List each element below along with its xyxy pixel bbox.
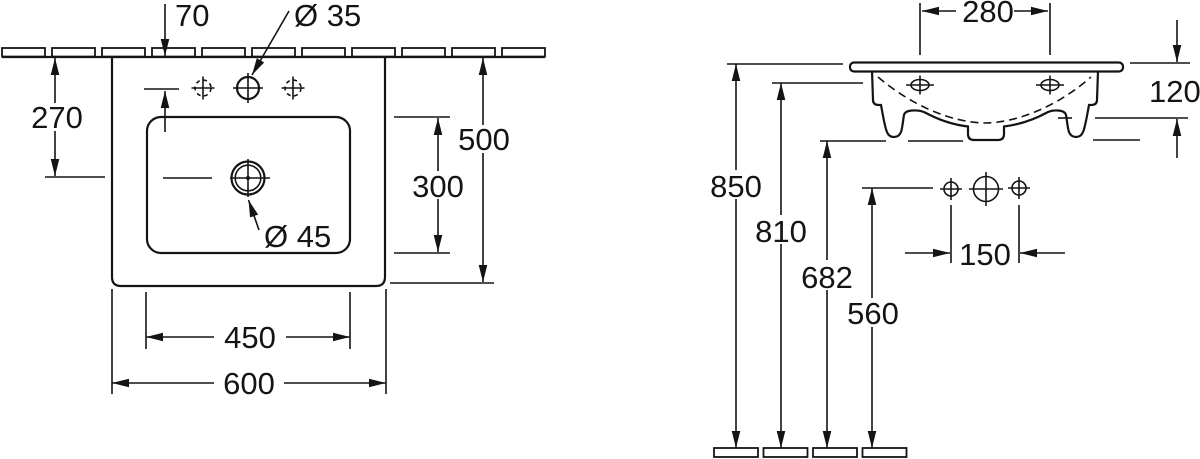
dim-label-dia35: Ø 35 (294, 0, 361, 33)
wall-hatch-brick (452, 48, 495, 57)
dimension-line (249, 200, 260, 230)
dim-label-810: 810 (755, 214, 807, 249)
rim-slab (850, 63, 1123, 72)
floor-hatch-brick (714, 448, 758, 457)
dimension-line (252, 11, 289, 75)
floor-hatch-brick (813, 448, 857, 457)
washbasin-drawing-svg: 70 Ø 35 270 500 300 Ø 45 450 600 280 120… (0, 0, 1200, 459)
dim-label-280: 280 (962, 0, 1014, 29)
floor-hatch-brick (764, 448, 808, 457)
wall-hatch-brick (102, 48, 145, 57)
dim-label-450: 450 (224, 320, 276, 355)
dim-label-150: 150 (959, 237, 1011, 272)
dim-label-270: 270 (31, 100, 83, 135)
wall-hatch-brick (202, 48, 245, 57)
section-hatching (2, 48, 907, 457)
dim-label-500: 500 (458, 122, 510, 157)
dim-label-dia45: Ø 45 (264, 219, 331, 254)
floor-hatch-brick (863, 448, 907, 457)
dim-label-300: 300 (412, 169, 464, 204)
wall-hatch-brick (302, 48, 345, 57)
wall-hatch-brick (352, 48, 395, 57)
dim-label-560: 560 (847, 296, 899, 331)
dimension-labels: 70 Ø 35 270 500 300 Ø 45 450 600 280 120… (31, 0, 1200, 401)
dim-label-682: 682 (801, 260, 853, 295)
wall-hatch-brick (502, 48, 545, 57)
wall-hatch-brick (252, 48, 295, 57)
wall-hatch-brick (152, 48, 195, 57)
wall-hatch-brick (52, 48, 95, 57)
wall-hatch-brick (2, 48, 45, 57)
dim-label-600: 600 (223, 366, 275, 401)
dimension-lines (45, 3, 1190, 448)
dim-label-120: 120 (1149, 74, 1200, 109)
wall-hatch-brick (402, 48, 445, 57)
dim-label-850: 850 (710, 169, 762, 204)
body-silhouette (872, 71, 1098, 140)
technical-drawing-canvas: 70 Ø 35 270 500 300 Ø 45 450 600 280 120… (0, 0, 1200, 459)
dim-label-70: 70 (175, 0, 209, 33)
